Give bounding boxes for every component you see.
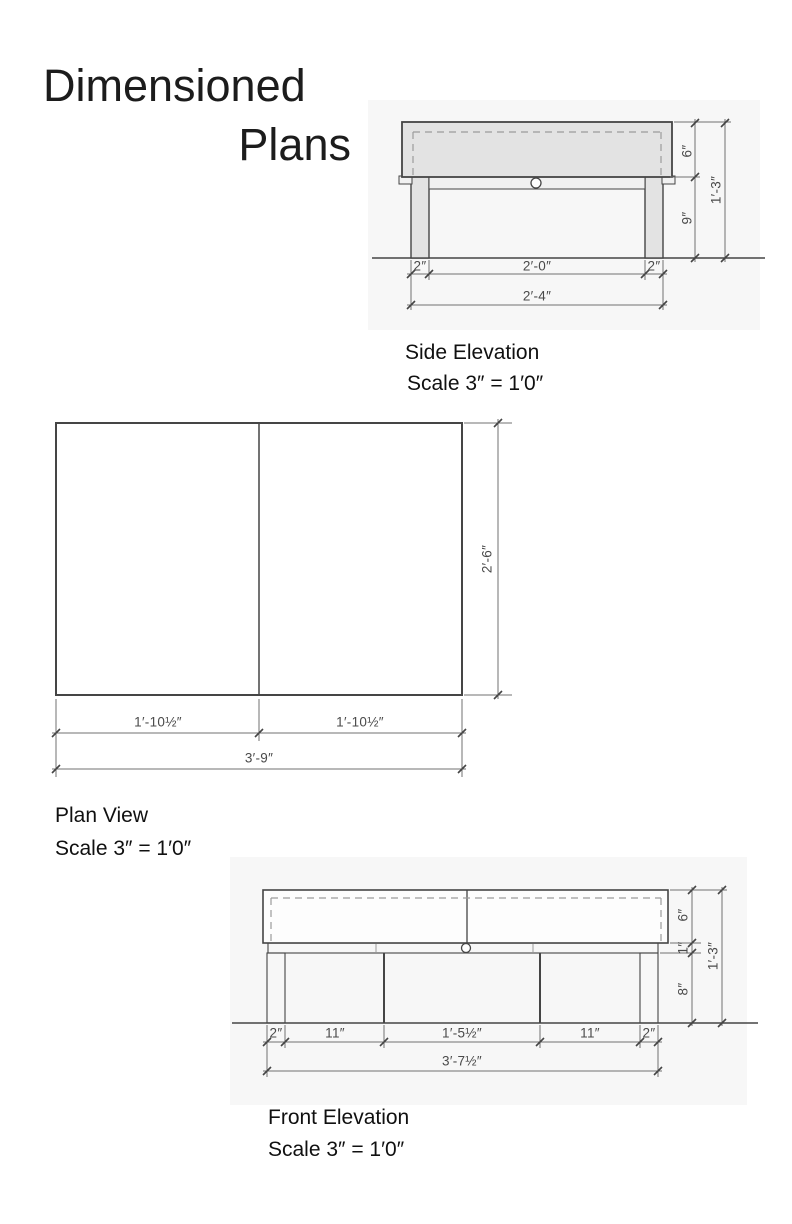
front-elevation-drawing: [230, 857, 758, 1105]
page-title-line2: Plans: [43, 119, 351, 171]
plan-view-scale: Scale 3″ = 1′0″: [55, 837, 191, 861]
pv-dim-left-half: 1′-10½″: [134, 715, 182, 730]
plan-view-drawing: [52, 419, 512, 777]
fe-dim-right-leg: 2″: [643, 1026, 656, 1041]
se-dim-span: 2′-0″: [523, 259, 551, 274]
se-tabletop: [402, 122, 672, 177]
fe-dim-left-leg: 2″: [270, 1026, 283, 1041]
drawing-linework: [0, 0, 792, 1224]
drawing-sheet: Dimensioned Plans 6″ 9″ 1′-3″ 2″ 2′-0″ 2…: [0, 0, 792, 1224]
fe-dim-right-bay: 11″: [580, 1026, 600, 1041]
se-dim-right-leg: 2″: [648, 259, 661, 274]
fe-dim-top-height: 6″: [676, 909, 691, 922]
side-elevation-drawing: [368, 100, 765, 330]
se-right-leg: [645, 176, 663, 258]
pv-dim-right-half: 1′-10½″: [336, 715, 384, 730]
pv-dim-total-width: 3′-9″: [245, 751, 273, 766]
page-title-line1: Dimensioned: [43, 60, 306, 112]
side-elevation-scale: Scale 3″ = 1′0″: [407, 372, 543, 396]
fe-dim-apron-height: 1″: [676, 942, 691, 955]
fe-dowel-icon: [462, 944, 471, 953]
fe-dim-total-height: 1′-3″: [706, 942, 721, 970]
se-dim-total-height: 1′-3″: [709, 176, 724, 204]
plan-view-title: Plan View: [55, 804, 148, 828]
se-dim-total-width: 2′-4″: [523, 289, 551, 304]
se-dowel-icon: [531, 178, 541, 188]
fe-dim-leg-height: 8″: [676, 983, 691, 996]
fe-dim-total-width: 3′-7½″: [442, 1054, 482, 1069]
se-dim-top-height: 6″: [680, 145, 695, 158]
side-elevation-title: Side Elevation: [405, 341, 539, 365]
se-dim-left-leg: 2″: [414, 259, 427, 274]
pv-dim-depth: 2′-6″: [480, 545, 495, 573]
se-left-leg: [411, 176, 429, 258]
front-elevation-scale: Scale 3″ = 1′0″: [268, 1138, 404, 1162]
fe-dim-center-bay: 1′-5½″: [442, 1026, 482, 1041]
fe-dim-left-bay: 11″: [325, 1026, 345, 1041]
front-elevation-title: Front Elevation: [268, 1106, 409, 1130]
se-dim-leg-height: 9″: [680, 212, 695, 225]
